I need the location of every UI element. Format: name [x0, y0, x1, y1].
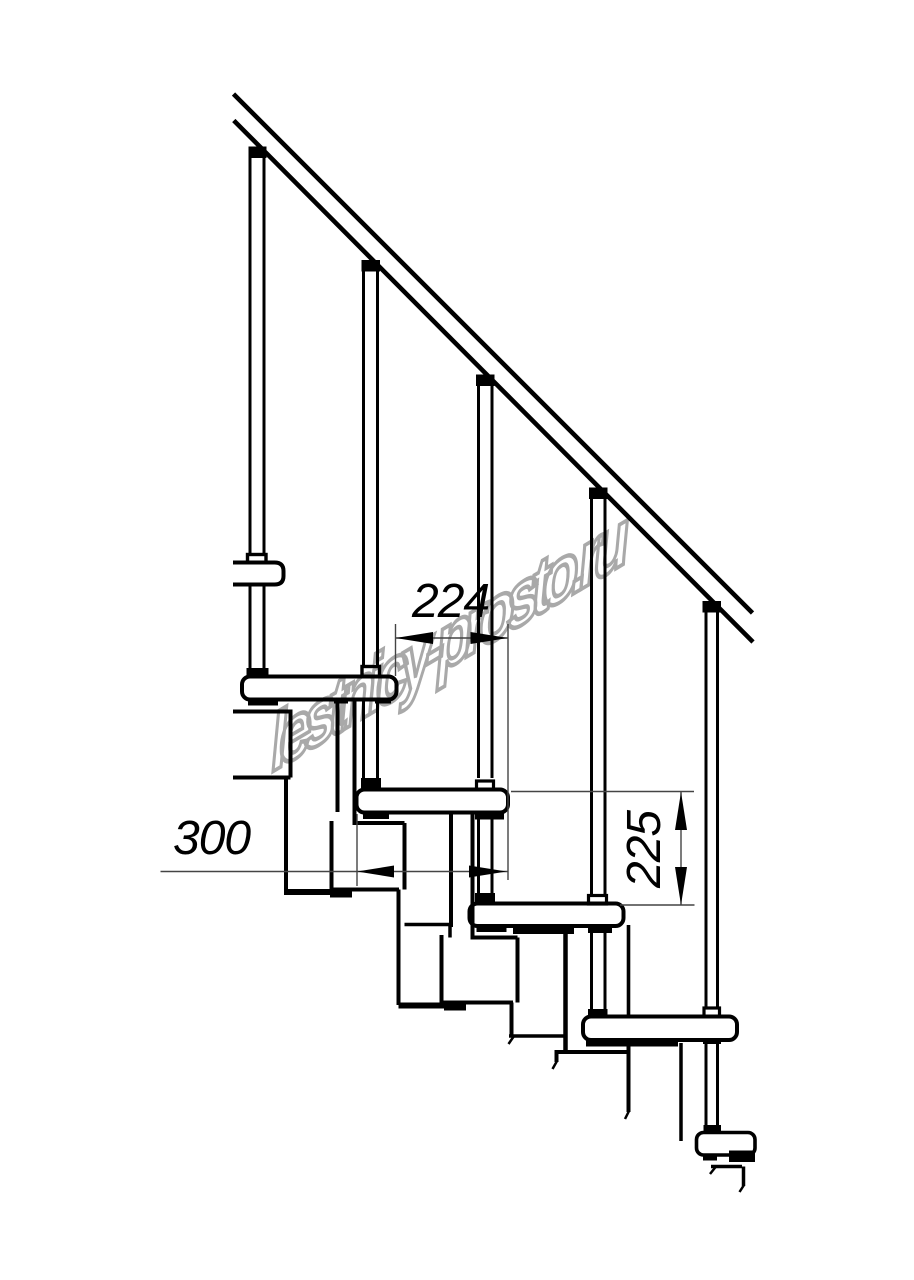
svg-text:225: 225 [618, 810, 671, 889]
svg-text:300: 300 [173, 812, 251, 865]
svg-text:224: 224 [411, 575, 489, 628]
